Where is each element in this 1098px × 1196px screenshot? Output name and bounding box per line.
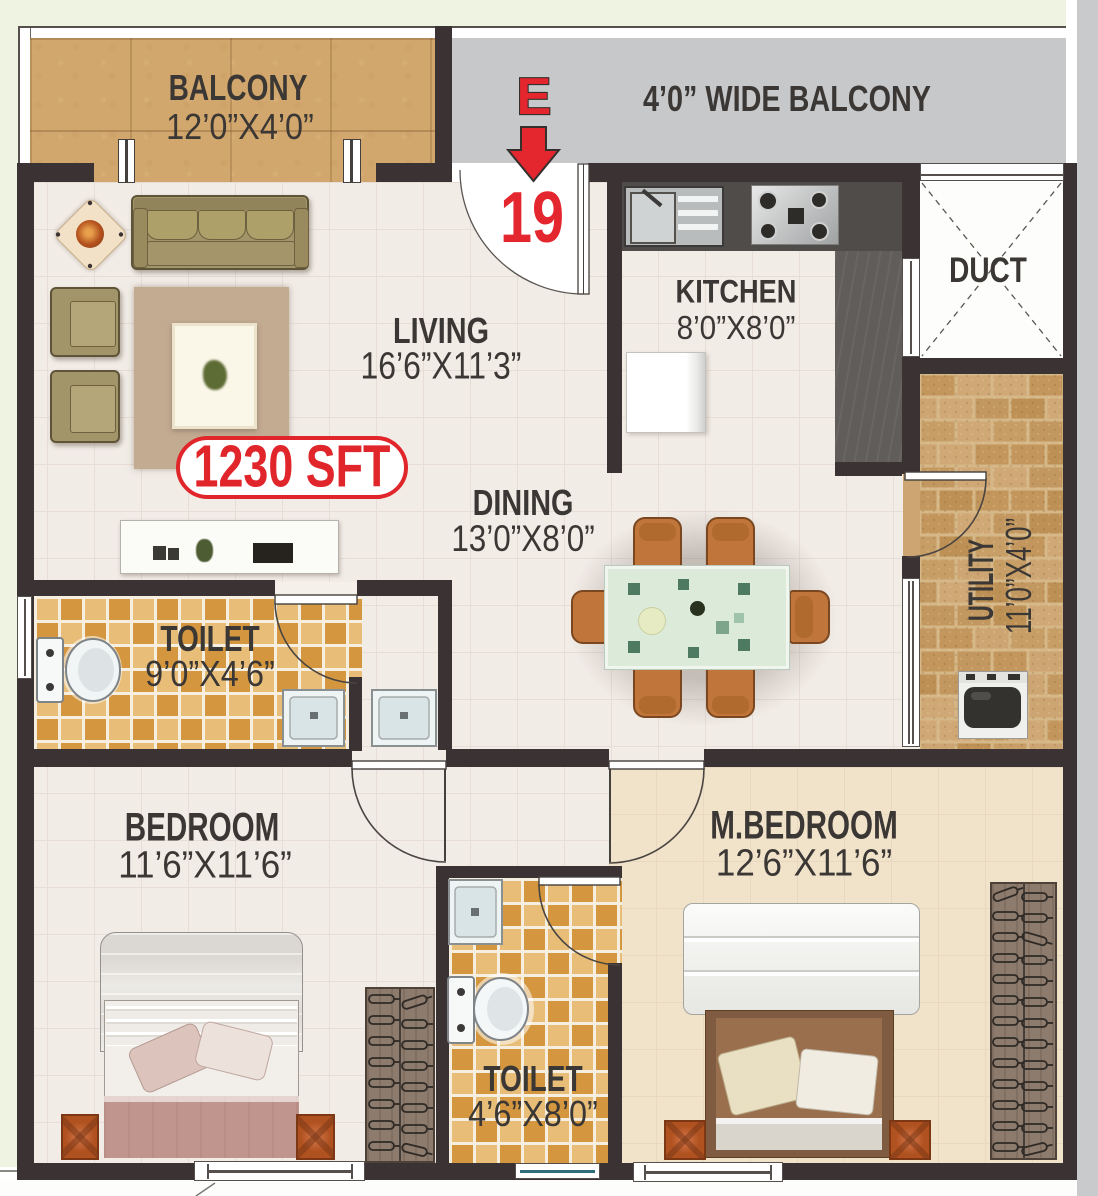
svg-text:E: E <box>517 68 552 126</box>
